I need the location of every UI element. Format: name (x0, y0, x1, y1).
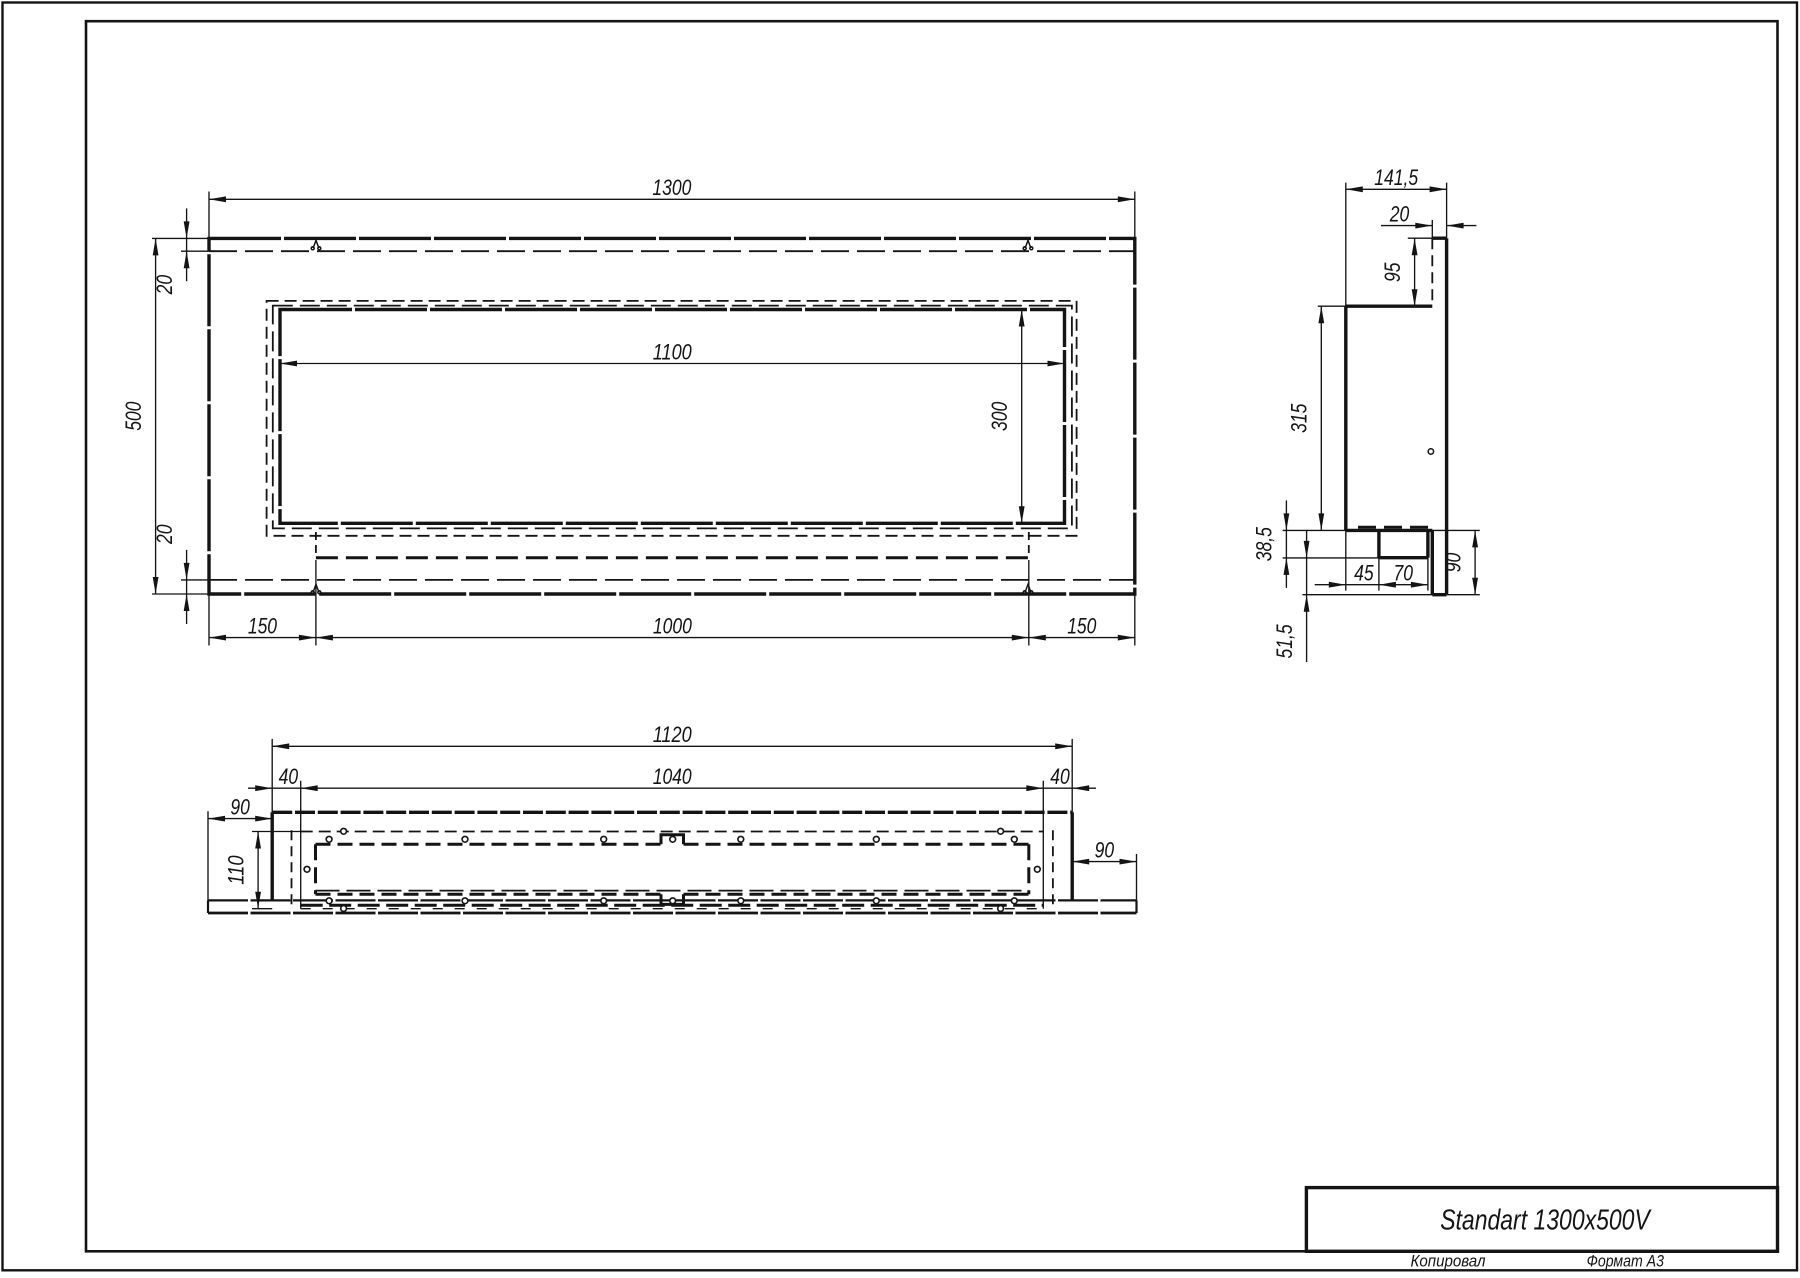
svg-text:Копировал: Копировал (1411, 1252, 1486, 1271)
svg-text:110: 110 (223, 855, 248, 885)
svg-text:141,5: 141,5 (1374, 165, 1418, 190)
svg-text:20: 20 (152, 274, 177, 295)
svg-text:Формат А3: Формат А3 (1587, 1252, 1665, 1271)
svg-text:1100: 1100 (653, 339, 692, 364)
svg-text:40: 40 (279, 764, 299, 789)
svg-text:300: 300 (987, 401, 1012, 431)
svg-text:20: 20 (152, 524, 177, 545)
svg-text:Standart 1300x500V: Standart 1300x500V (1440, 1205, 1652, 1237)
svg-text:90: 90 (230, 794, 250, 819)
svg-text:90: 90 (1440, 552, 1465, 572)
svg-text:1040: 1040 (653, 764, 692, 789)
svg-text:70: 70 (1394, 561, 1414, 586)
svg-text:45: 45 (1354, 561, 1374, 586)
svg-text:51,5: 51,5 (1272, 624, 1297, 659)
svg-text:150: 150 (248, 613, 278, 638)
svg-text:1000: 1000 (653, 613, 692, 638)
svg-text:20: 20 (1389, 202, 1410, 227)
svg-text:90: 90 (1095, 837, 1115, 862)
svg-text:1120: 1120 (653, 722, 692, 747)
svg-text:315: 315 (1287, 403, 1312, 433)
svg-text:500: 500 (121, 401, 146, 431)
svg-text:1300: 1300 (652, 175, 691, 200)
svg-text:40: 40 (1050, 764, 1070, 789)
svg-text:95: 95 (1380, 262, 1405, 282)
svg-text:150: 150 (1067, 613, 1097, 638)
svg-text:38,5: 38,5 (1252, 527, 1277, 562)
